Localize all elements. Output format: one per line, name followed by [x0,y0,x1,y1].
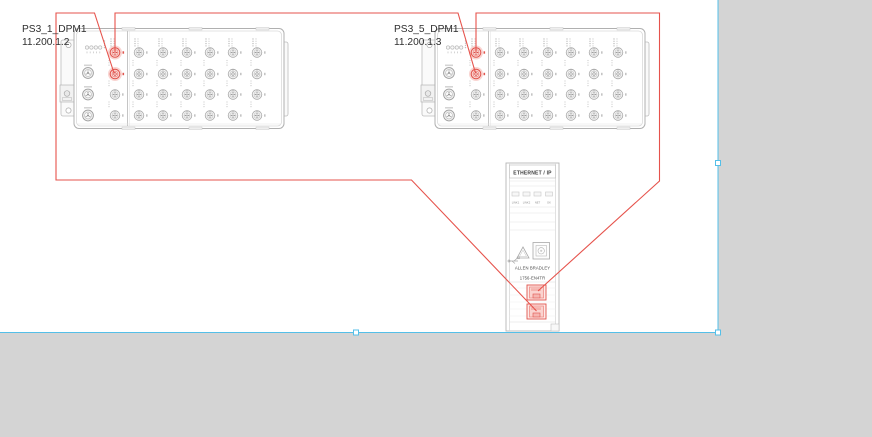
drawing-canvas: ETHERNET / IP LINK1 LINK2 NET OK [0,0,872,437]
led-label-ok: OK [547,201,551,205]
handle-bottom-right[interactable] [716,330,721,335]
led-label-link2: LINK2 [523,201,531,205]
module-model-label: 1756-EN4TR [520,276,545,281]
handle-right-middle[interactable] [716,161,721,166]
module-ethernet-port-1[interactable] [527,285,546,300]
module-header-label: ETHERNET / IP [513,171,552,177]
led-label-link1: LINK1 [512,201,520,205]
en4tr-module[interactable]: ETHERNET / IP LINK1 LINK2 NET OK [506,163,559,331]
module-ethernet-port-2[interactable] [527,304,546,319]
module-brand-label: ALLEN BRADLEY [515,266,550,271]
display-port-icon [533,243,550,260]
device-panel-1[interactable] [60,28,288,130]
panel-1-name-label[interactable]: PS3_1_DPM1 [22,24,87,35]
panel-1-ip-label[interactable]: 11.200.1.2 [22,37,70,48]
module-bottom-tab [551,324,559,331]
handle-bottom-middle[interactable] [354,330,359,335]
panel-2-name-label[interactable]: PS3_5_DPM1 [394,24,459,35]
device-panel-2[interactable] [421,28,649,130]
panel-2-ip-label[interactable]: 11.200.1.3 [394,37,442,48]
led-label-net: NET [535,201,541,205]
